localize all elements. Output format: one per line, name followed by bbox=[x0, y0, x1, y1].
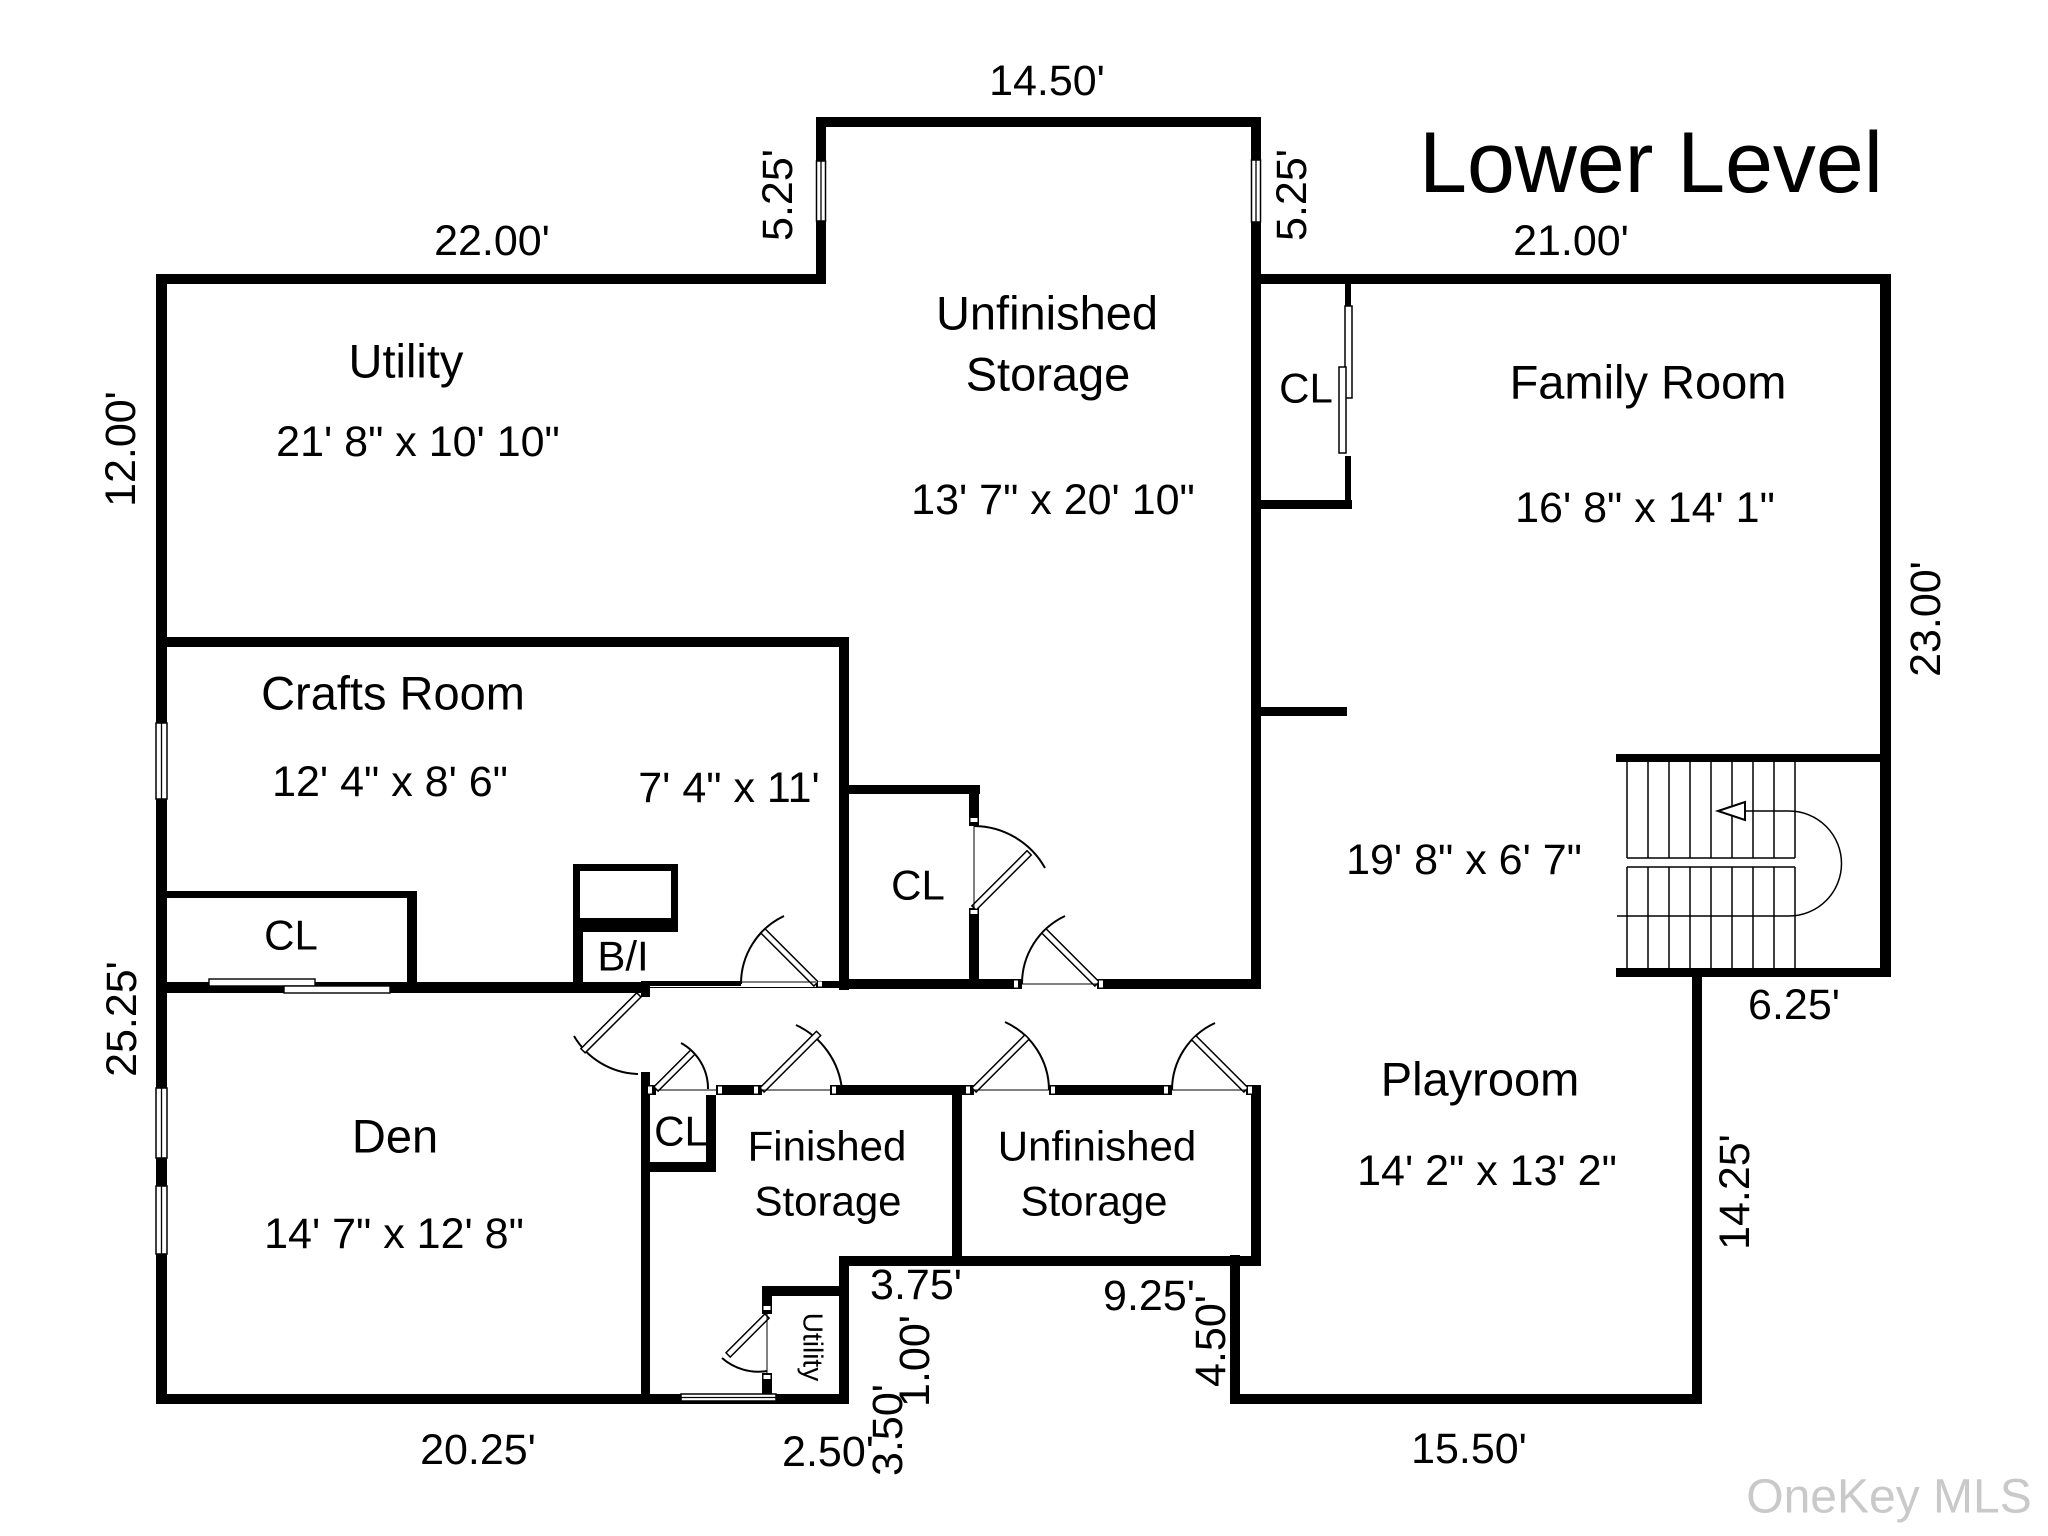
svg-text:20.25': 20.25' bbox=[420, 1426, 536, 1474]
svg-text:21.00': 21.00' bbox=[1513, 217, 1629, 265]
svg-text:CL: CL bbox=[891, 862, 945, 909]
svg-text:Utility: Utility bbox=[798, 1313, 829, 1381]
svg-text:12.00': 12.00' bbox=[97, 391, 145, 507]
svg-text:2.50': 2.50' bbox=[782, 1428, 874, 1476]
svg-text:Storage: Storage bbox=[1020, 1178, 1167, 1225]
svg-text:7' 4" x 11': 7' 4" x 11' bbox=[638, 764, 820, 812]
svg-text:16' 8" x 14' 1": 16' 8" x 14' 1" bbox=[1515, 484, 1775, 532]
svg-text:14' 7" x 12' 8": 14' 7" x 12' 8" bbox=[264, 1210, 524, 1258]
svg-text:14' 2" x 13' 2": 14' 2" x 13' 2" bbox=[1357, 1147, 1617, 1195]
svg-text:Crafts Room: Crafts Room bbox=[261, 667, 525, 720]
svg-text:9.25': 9.25' bbox=[1103, 1272, 1195, 1320]
svg-text:Finished: Finished bbox=[748, 1123, 907, 1170]
svg-text:14.25': 14.25' bbox=[1711, 1134, 1759, 1250]
svg-text:Storage: Storage bbox=[754, 1178, 901, 1225]
svg-text:6.25': 6.25' bbox=[1748, 981, 1840, 1029]
svg-text:Storage: Storage bbox=[966, 348, 1131, 401]
svg-text:OneKey MLS: OneKey MLS bbox=[1746, 1471, 2031, 1524]
svg-text:13' 7" x 20' 10": 13' 7" x 20' 10" bbox=[911, 476, 1195, 524]
svg-text:15.50': 15.50' bbox=[1411, 1425, 1527, 1473]
svg-text:Family Room: Family Room bbox=[1510, 356, 1787, 409]
svg-text:CL: CL bbox=[654, 1108, 708, 1155]
svg-text:25.25': 25.25' bbox=[98, 961, 146, 1077]
svg-text:3.50': 3.50' bbox=[864, 1384, 912, 1476]
svg-text:Den: Den bbox=[352, 1110, 438, 1163]
svg-text:22.00': 22.00' bbox=[434, 217, 550, 265]
svg-text:19' 8" x 6' 7": 19' 8" x 6' 7" bbox=[1346, 836, 1582, 884]
svg-text:Unfinished: Unfinished bbox=[936, 287, 1158, 340]
svg-text:5.25': 5.25' bbox=[1268, 149, 1316, 241]
svg-text:Playroom: Playroom bbox=[1381, 1053, 1580, 1106]
svg-text:CL: CL bbox=[264, 912, 318, 959]
svg-text:5.25': 5.25' bbox=[754, 149, 802, 241]
svg-text:CL: CL bbox=[1279, 365, 1333, 412]
svg-text:14.50': 14.50' bbox=[989, 57, 1105, 105]
svg-text:12' 4" x 8' 6": 12' 4" x 8' 6" bbox=[272, 758, 508, 806]
svg-text:23.00': 23.00' bbox=[1902, 561, 1950, 677]
svg-text:Lower Level: Lower Level bbox=[1419, 115, 1883, 211]
svg-text:B/I: B/I bbox=[597, 933, 648, 980]
svg-text:Utility: Utility bbox=[349, 335, 464, 388]
svg-text:3.75': 3.75' bbox=[870, 1261, 962, 1309]
svg-text:21' 8" x 10' 10": 21' 8" x 10' 10" bbox=[276, 418, 560, 466]
svg-text:Unfinished: Unfinished bbox=[998, 1123, 1196, 1170]
